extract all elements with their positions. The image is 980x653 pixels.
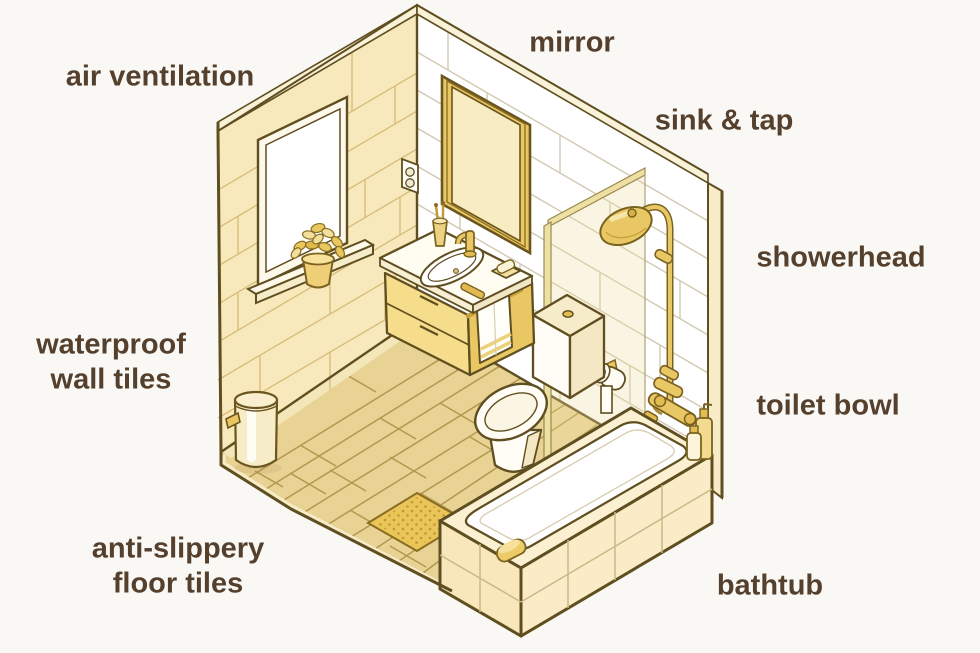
label-anti-slippery-floor-tiles: anti-slippery floor tiles: [92, 532, 264, 603]
label-toilet-bowl: toilet bowl: [756, 388, 899, 423]
label-mirror: mirror: [529, 25, 614, 60]
label-air-ventilation: air ventilation: [66, 59, 255, 94]
bathroom-diagram: air ventilation mirror sink & tap shower…: [0, 0, 980, 653]
label-showerhead: showerhead: [756, 240, 925, 275]
label-sink-and-tap: sink & tap: [655, 103, 794, 138]
label-bathtub: bathtub: [717, 568, 823, 603]
power-outlet: [402, 159, 418, 193]
label-waterproof-wall-tiles: waterproof wall tiles: [36, 328, 186, 399]
